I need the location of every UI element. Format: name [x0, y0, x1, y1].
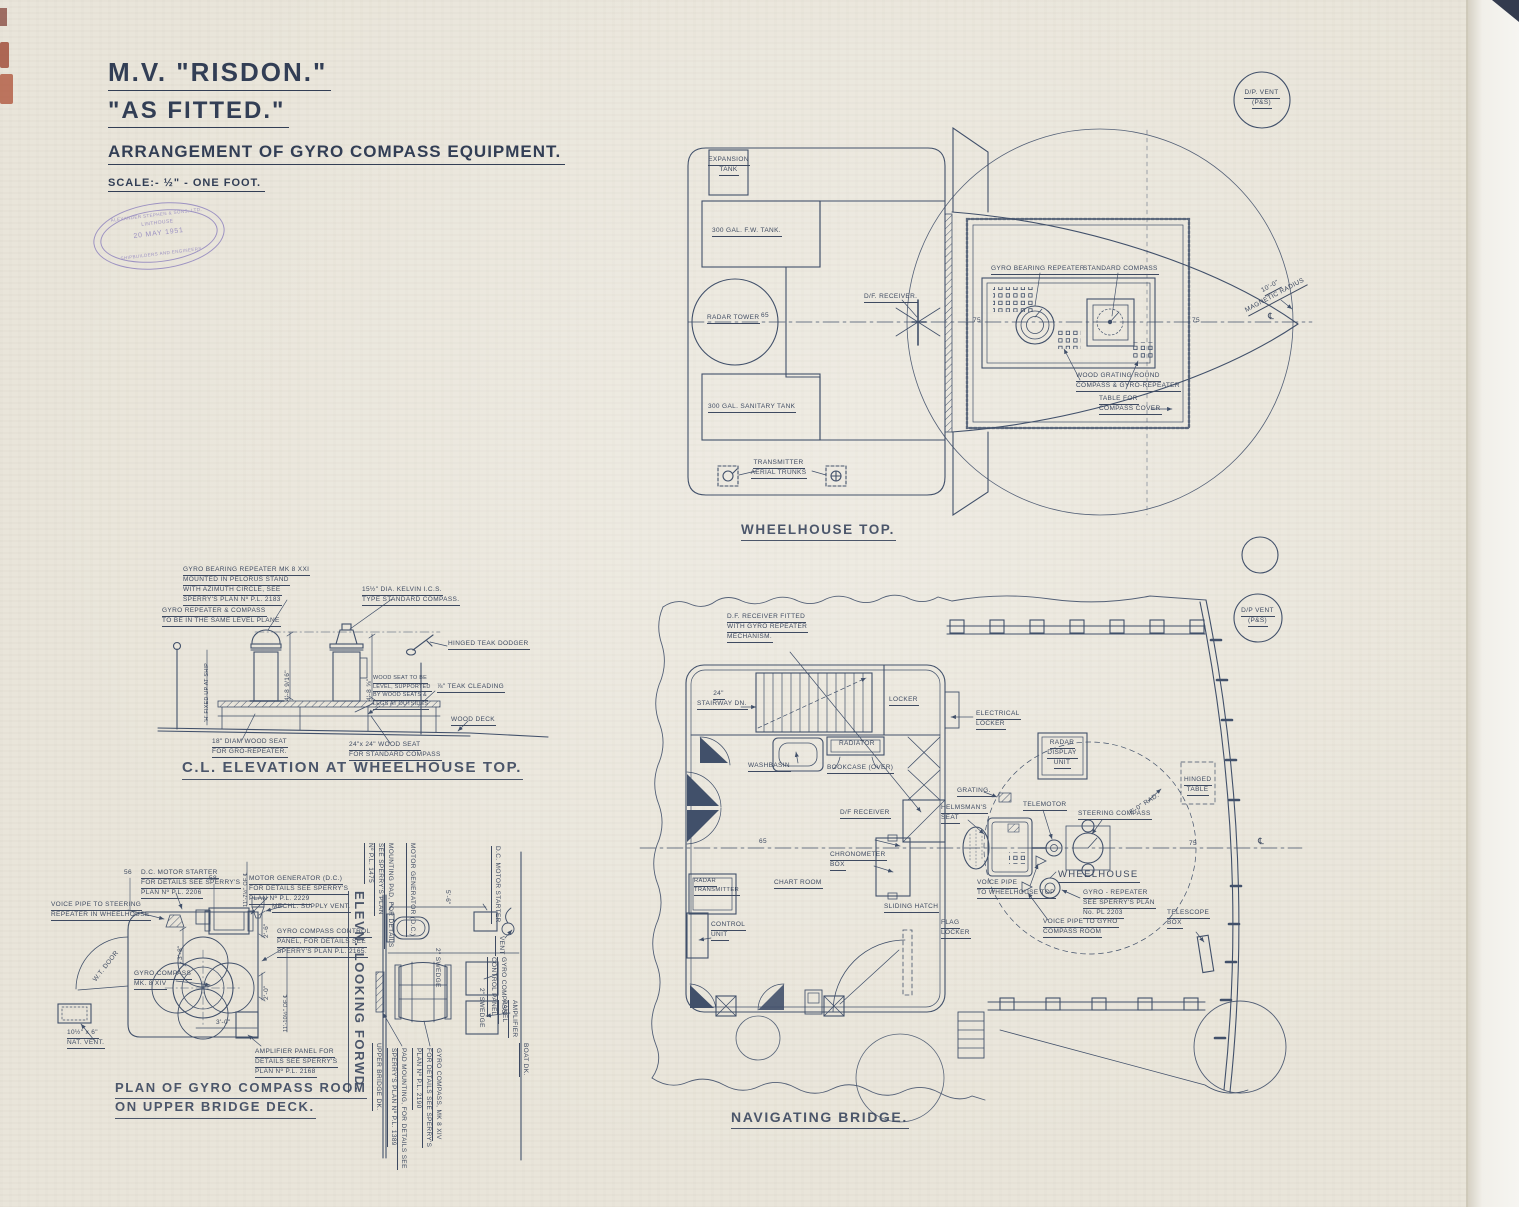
- label-dc-motor-starter: D.C. MOTOR STARTERFOR DETAILS SEE SPERRY…: [141, 869, 241, 899]
- label-df-receiver-top: D/F. RECEIVER.: [864, 293, 918, 303]
- label-level-note: GYRO REPEATER & COMPASSTO BE IN THE SAME…: [162, 607, 281, 627]
- dim-2-0: 2'-0": [263, 984, 272, 1000]
- dim-left-pedestal: 4'-8 9/16": [284, 669, 293, 701]
- label-stairway: 24"STAIRWAY DN.: [697, 690, 741, 710]
- label-h-fixed: 'H' FIXED UP AT SHIP: [204, 662, 212, 722]
- drawing-title: ARRANGEMENT OF GYRO COMPASS EQUIPMENT.: [108, 142, 565, 165]
- label-dp-vent-top: D/P. VENT(P&S): [1240, 89, 1284, 109]
- dim-2-6: 2'-6": [263, 922, 272, 938]
- nav-bridge-title: NAVIGATING BRIDGE.: [731, 1108, 909, 1129]
- red-edge-mark-2: [0, 74, 13, 104]
- label-gyro-compass-plan: GYRO COMPASSMK. 8 XIV: [134, 970, 192, 990]
- label-ef-gyro-compass: GYRO COMPASS, MK 8 XIVFOR DETAILS SEE SP…: [412, 1048, 442, 1148]
- scan-edge-strip: [1468, 0, 1519, 1207]
- label-chart-room: CHART ROOM: [774, 879, 823, 889]
- label-ef-vent: VENT: [495, 936, 505, 956]
- label-teak-cleading: ⅞" TEAK CLEADING: [437, 683, 505, 693]
- label-telescope-box: TELESCOPEBOX: [1167, 909, 1210, 929]
- label-radar-display-unit: RADARDISPLAYUNIT: [1041, 739, 1084, 769]
- label-radar-transmitter: RADARTRANSMITTER: [694, 878, 740, 896]
- drawing-sheet: M.V. "RISDON." "AS FITTED." ARRANGEMENT …: [0, 0, 1519, 1207]
- frame-number-65-bridge: 65: [759, 838, 768, 847]
- label-df-receiver-bridge: D/F RECEIVER: [840, 809, 891, 819]
- frame-number-75a: 75: [973, 317, 982, 326]
- label-flag-locker: FLAGLOCKER: [941, 919, 971, 939]
- label-swedge-1: 2" SWEDGE: [432, 948, 441, 989]
- frame-number-75-bridge: 75: [1189, 840, 1198, 849]
- label-ef-dc-starter: D.C. MOTOR STARTER: [491, 846, 501, 924]
- label-wood-seat-note: WOOD SEAT TO BELEVEL, SUPPORTEDBY WOOD S…: [373, 675, 432, 710]
- label-transmitter-trunks: TRANSMITTERAERIAL TRUNKS: [744, 459, 814, 479]
- label-wood-deck: WOOD DECK: [451, 716, 496, 726]
- label-gyro-bearing-repeater: GYRO BEARING REPEATER: [991, 265, 1086, 275]
- as-fitted: "AS FITTED.": [108, 97, 289, 128]
- label-radiator: RADIATOR: [839, 740, 876, 749]
- label-upper-bridge-deck: UPPER BRIDGE DK.: [372, 1043, 382, 1111]
- label-seat-18: 18" DIAM WOOD SEATFOR GRO-REPEATER.: [212, 738, 288, 758]
- label-chronometer-box: CHRONOMETERBOX: [830, 851, 887, 871]
- label-telemotor: TELEMOTOR: [1023, 801, 1067, 811]
- label-fw-tank: 300 GAL. F.W. TANK.: [712, 227, 782, 237]
- frame-number-65: 65: [761, 312, 770, 321]
- frame-number-75b: 75: [1192, 317, 1201, 326]
- label-dp-vent-bridge: D/P VENT(P&S): [1236, 607, 1280, 627]
- label-boat-deck: BOAT DK.: [519, 1043, 529, 1077]
- ship-name: M.V. "RISDON.": [108, 57, 331, 91]
- label-df-receiver-fitted: D.F. RECEIVER FITTEDWITH GYRO REPEATERME…: [727, 613, 808, 643]
- red-edge-mark-3: [0, 8, 7, 26]
- dim-3-0: 3'-0": [216, 1019, 232, 1028]
- label-grating: GRATING.: [957, 787, 992, 797]
- label-locker: LOCKER: [889, 696, 919, 706]
- label-helmsman-seat: HELMSMAN'SSEAT: [941, 804, 988, 824]
- scale-note: SCALE:- ½" - ONE FOOT.: [108, 177, 265, 192]
- label-hinged-teak-dodger: HINGED TEAK DODGER: [448, 640, 530, 650]
- label-kelvin-compass: 15½" DIA. KELVIN I.C.S.TYPE STANDARD COM…: [362, 586, 460, 606]
- label-wheelhouse: WHEELHOUSE: [1058, 869, 1140, 883]
- label-table-compass-cover: TABLE FORCOMPASS COVER: [1099, 395, 1162, 415]
- label-voice-pipe-gyro: VOICE PIPE TO GYROCOMPASS ROOM: [1043, 918, 1119, 938]
- label-motor-generator: MOTOR GENERATOR (D.C.)FOR DETAILS SEE SP…: [249, 875, 349, 905]
- label-radar-tower: RADAR TOWER: [707, 314, 760, 324]
- label-electrical-locker: ELECTRICALLOCKER: [976, 710, 1021, 730]
- label-standard-compass: STANDARD COMPASS: [1083, 265, 1159, 275]
- label-mech-supply-vent: MECHL. SUPPLY VENT.: [272, 903, 351, 913]
- label-ef-motor-generator: MOTOR GENERATOR (D.C.): [406, 843, 416, 937]
- label-gyro-repeater-bridge: GYRO - REPEATERSEE SPERRY'S PLANNo. PL 2…: [1083, 889, 1156, 919]
- label-washbasin: WASHBASIN: [748, 762, 791, 772]
- wheelhouse-top-title: WHEELHOUSE TOP.: [741, 521, 896, 541]
- dim-right-pedestal: 4'-8 ⅝": [366, 677, 375, 701]
- label-nat-vent: 10½" x 6"NAT. VENT.: [67, 1029, 105, 1049]
- centerline-symbol-bridge: ℄: [1258, 836, 1265, 848]
- label-wood-grating: WOOD GRATING ROUNDCOMPASS & GYRO-REPEATE…: [1076, 372, 1181, 392]
- label-amplifier-panel: AMPLIFIER PANEL FORDETAILS SEE SPERRY'SP…: [255, 1048, 338, 1078]
- label-ef-mounting-pad: MOUNTING PAD, FOR DETAILSSEE SPERRY'S PL…: [364, 843, 394, 949]
- label-voice-pipe-steering: VOICE PIPE TO STEERINGREPEATER IN WHEELH…: [51, 901, 151, 921]
- label-ef-amplifier: AMPLIFIERPANEL: [498, 1000, 518, 1038]
- gyro-room-title: PLAN OF GYRO COMPASS ROOMON UPPER BRIDGE…: [115, 1080, 307, 1119]
- dim-11-10: 11'-10½" OF ℄: [283, 993, 291, 1032]
- label-control-unit: CONTROLUNIT: [711, 921, 746, 941]
- label-hinged-table: HINGEDTABLE: [1184, 776, 1212, 796]
- paper-edge-line: [1466, 0, 1468, 1207]
- elevation-title: C.L. ELEVATION AT WHEELHOUSE TOP.: [182, 758, 523, 780]
- red-edge-mark-1: [0, 42, 9, 68]
- label-swedge-2: 2" SWEDGE: [476, 988, 485, 1029]
- label-repeater-note: GYRO BEARING REPEATER MK 8 XXIMOUNTED IN…: [183, 566, 310, 606]
- label-sliding-hatch: SLIDING HATCH: [884, 903, 939, 913]
- dim-3-8: 3'-8": [177, 944, 186, 960]
- centerline-symbol-wt: ℄: [1268, 311, 1275, 323]
- dim-5-6: 5'-6": [442, 890, 451, 906]
- label-bookcase: BOOKCASE (OVER): [827, 764, 894, 774]
- label-ef-pad-mounting: PAD MOUNTING, FOR DETAILS SEESPERRY'S PL…: [387, 1048, 407, 1170]
- wheelhouse-top-drawing: [688, 72, 1312, 515]
- frame-number-56: 56: [124, 869, 133, 878]
- dim-11-7: 11'-7½" OF ℄: [243, 871, 251, 907]
- label-expansion-tank: EXPANSIONTANK: [707, 156, 751, 176]
- label-sanitary-tank: 300 GAL. SANITARY TANK: [708, 403, 796, 413]
- label-voice-pipe-top: VOICE PIPETO WHEELHOUSE TOP: [977, 879, 1056, 899]
